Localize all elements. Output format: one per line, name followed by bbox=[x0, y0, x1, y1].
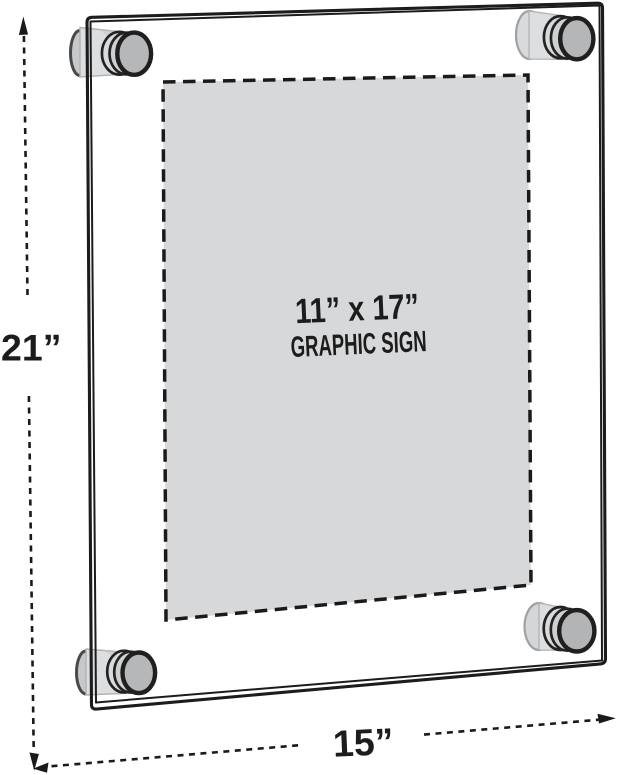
svg-text:15”: 15” bbox=[332, 720, 394, 765]
svg-text:21”: 21” bbox=[1, 327, 61, 369]
svg-text:11” x 17”: 11” x 17” bbox=[294, 287, 420, 331]
svg-text:GRAPHIC SIGN: GRAPHIC SIGN bbox=[290, 325, 427, 364]
